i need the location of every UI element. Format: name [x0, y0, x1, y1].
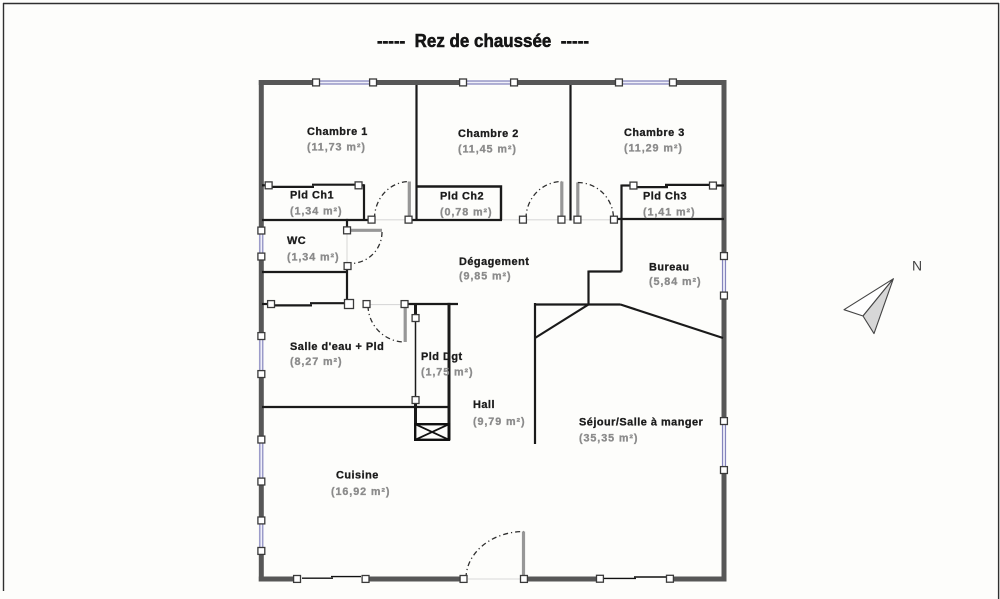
- svg-text:Pld Dgt: Pld Dgt: [421, 351, 463, 363]
- svg-text:Dégagement: Dégagement: [459, 256, 529, 268]
- svg-text:(1,34 m²): (1,34 m²): [290, 205, 343, 217]
- svg-text:(16,92 m²): (16,92 m²): [331, 486, 390, 498]
- svg-text:(0,78 m²): (0,78 m²): [440, 206, 493, 218]
- svg-text:(11,29 m²): (11,29 m²): [624, 143, 683, 155]
- svg-text:(9,79 m²): (9,79 m²): [473, 416, 526, 428]
- svg-text:----- Rez de chaussée -----: ----- Rez de chaussée -----: [377, 31, 589, 51]
- svg-text:Salle d'eau + Pld: Salle d'eau + Pld: [290, 341, 384, 353]
- svg-text:(11,73 m²): (11,73 m²): [307, 142, 366, 154]
- svg-text:Pld Ch3: Pld Ch3: [643, 191, 687, 203]
- svg-text:Chambre 3: Chambre 3: [624, 127, 685, 139]
- svg-text:(5,84 m²): (5,84 m²): [649, 276, 702, 288]
- svg-text:(1,41 m²): (1,41 m²): [643, 206, 696, 218]
- svg-text:(1,34 m²): (1,34 m²): [287, 252, 340, 264]
- svg-text:Chambre 1: Chambre 1: [307, 126, 368, 138]
- svg-text:Pld Ch2: Pld Ch2: [440, 191, 484, 203]
- svg-text:Hall: Hall: [473, 399, 495, 411]
- svg-text:(11,45 m²): (11,45 m²): [458, 144, 517, 156]
- svg-text:(1,75 m²): (1,75 m²): [421, 367, 474, 379]
- svg-text:Chambre 2: Chambre 2: [458, 128, 519, 140]
- svg-text:Bureau: Bureau: [649, 262, 690, 274]
- svg-text:Séjour/Salle à manger: Séjour/Salle à manger: [579, 417, 704, 429]
- svg-text:(8,27 m²): (8,27 m²): [290, 356, 343, 368]
- svg-text:Cuisine: Cuisine: [336, 470, 379, 482]
- svg-text:Pld Ch1: Pld Ch1: [290, 190, 334, 202]
- svg-text:N: N: [912, 258, 922, 274]
- svg-text:(9,85 m²): (9,85 m²): [459, 270, 512, 282]
- svg-text:(35,35 m²): (35,35 m²): [579, 432, 638, 444]
- svg-text:WC: WC: [287, 235, 306, 247]
